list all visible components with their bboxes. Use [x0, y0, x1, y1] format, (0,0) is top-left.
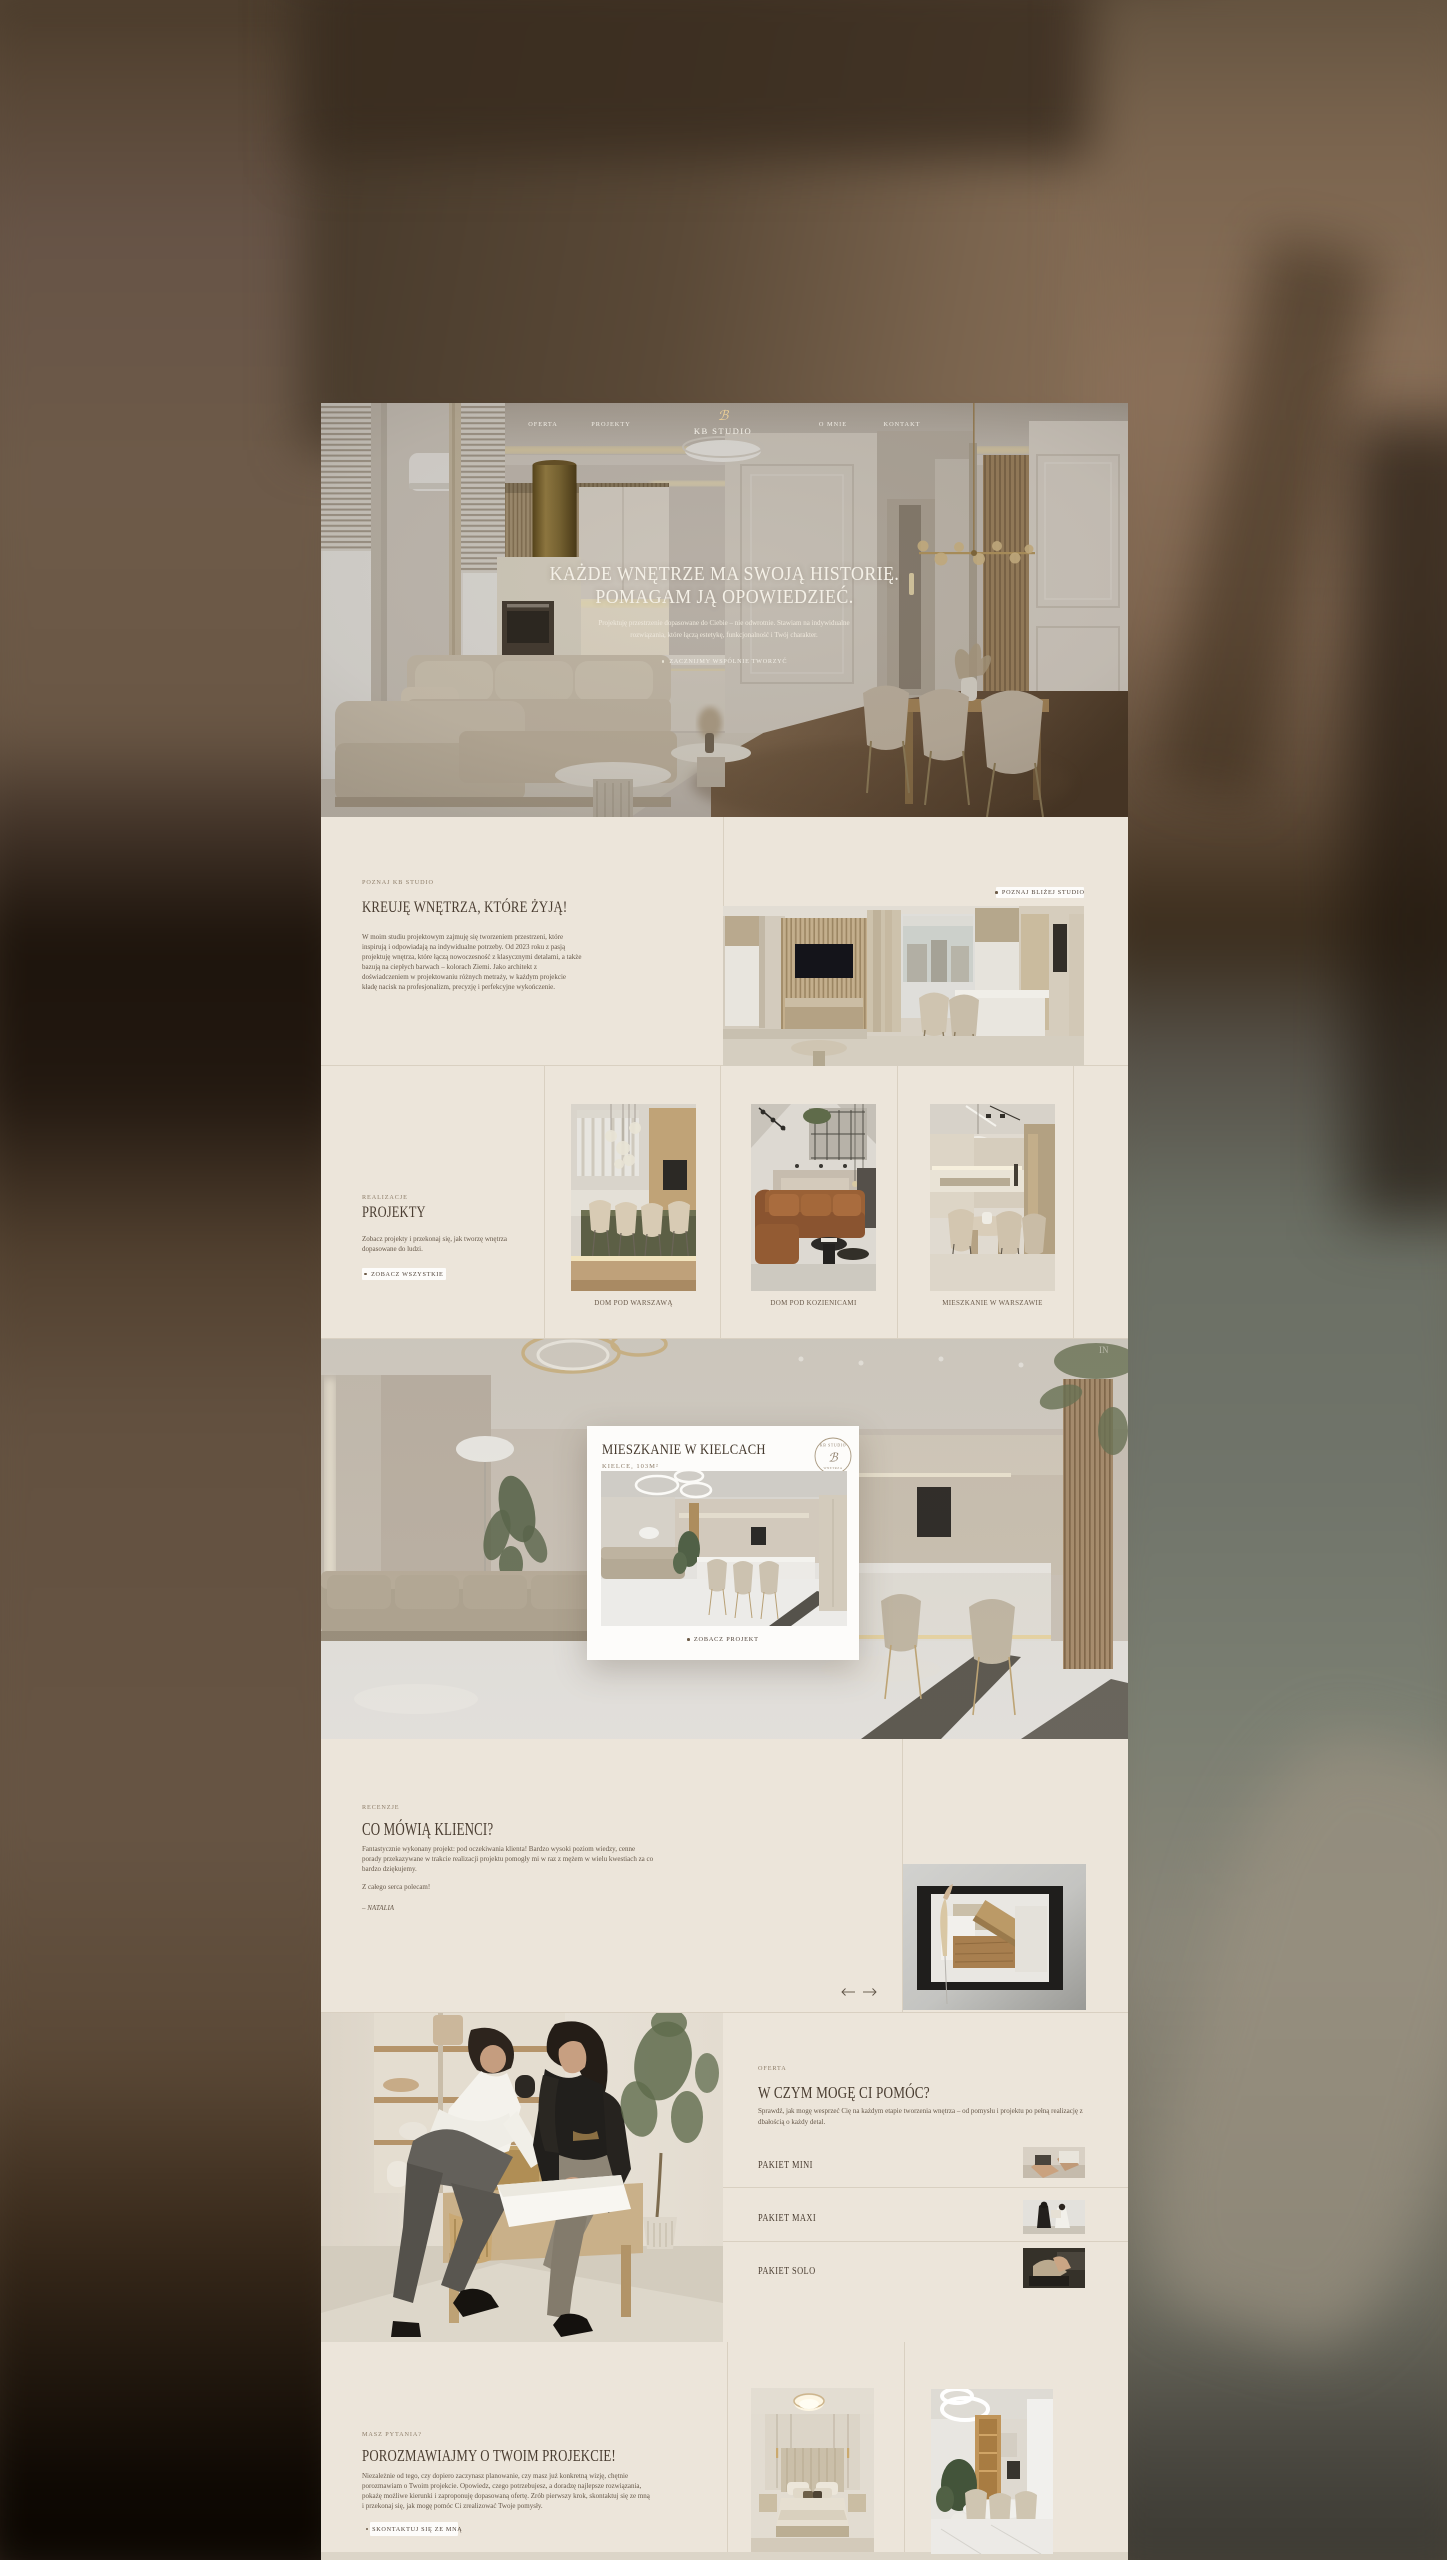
svg-text:ℬ: ℬ [828, 1451, 839, 1465]
svg-text:KB STUDIO: KB STUDIO [820, 1444, 846, 1448]
svg-text:WNETRZA: WNETRZA [823, 1466, 842, 1470]
